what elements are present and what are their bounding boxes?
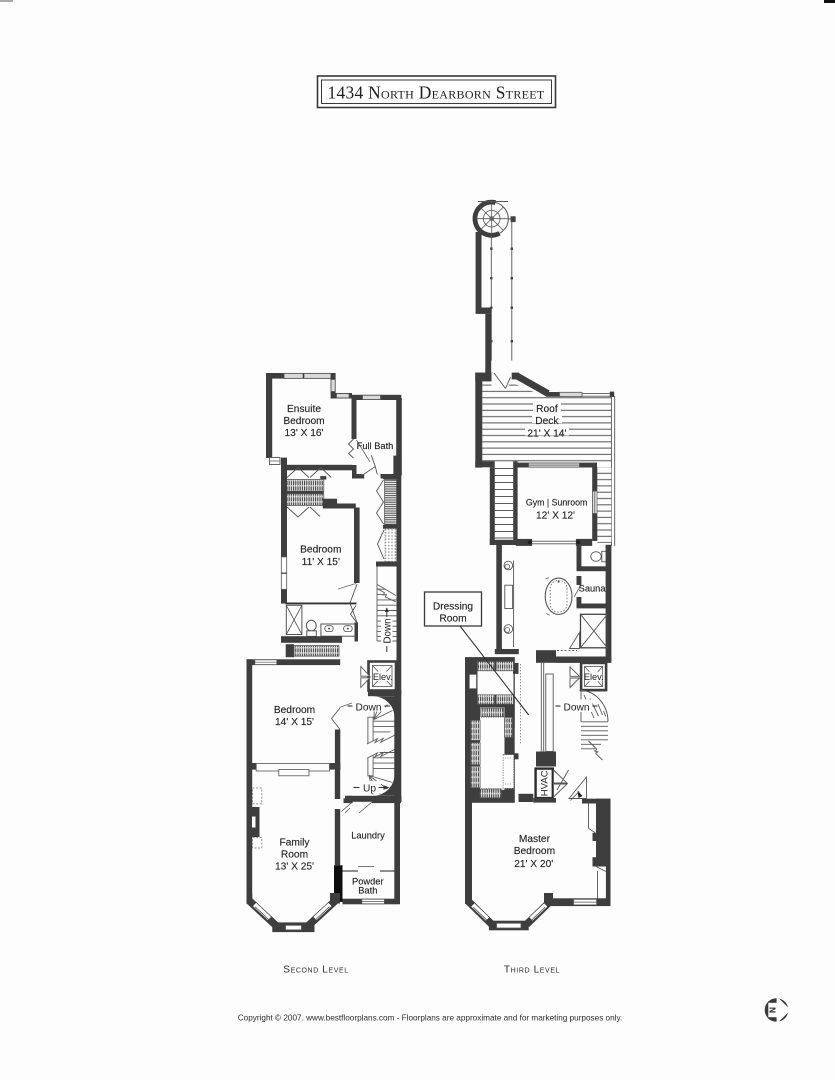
svg-text:Ensuite: Ensuite: [287, 404, 321, 415]
svg-text:Elev.: Elev.: [373, 672, 393, 682]
svg-text:13' X 25': 13' X 25': [275, 862, 314, 873]
svg-text:Elev.: Elev.: [584, 672, 604, 682]
svg-text:21' X 14': 21' X 14': [527, 429, 566, 440]
svg-text:Deck: Deck: [535, 416, 559, 427]
svg-text:Roof: Roof: [536, 404, 558, 415]
svg-text:Full Bath: Full Bath: [357, 441, 394, 451]
svg-text:Copyright © 2007. www.bestfloo: Copyright © 2007. www.bestfloorplans.com…: [238, 1014, 623, 1023]
svg-text:Down: Down: [355, 703, 381, 714]
svg-text:12' X 12': 12' X 12': [536, 511, 575, 522]
svg-text:Bath: Bath: [358, 886, 377, 896]
svg-text:Second Level: Second Level: [283, 965, 349, 976]
svg-text:Room: Room: [281, 850, 308, 861]
svg-text:14' X 15': 14' X 15': [275, 717, 314, 728]
svg-text:Room: Room: [439, 614, 466, 625]
svg-text:13' X 16': 13' X 16': [284, 428, 323, 439]
svg-text:21' X 20': 21' X 20': [514, 859, 553, 870]
svg-text:Up: Up: [363, 784, 376, 795]
svg-text:11' X 15': 11' X 15': [302, 557, 340, 568]
svg-text:Sauna: Sauna: [579, 583, 607, 593]
svg-text:N: N: [768, 1007, 778, 1013]
svg-text:HVAC: HVAC: [540, 770, 551, 796]
svg-text:Laundry: Laundry: [351, 831, 385, 841]
svg-text:Third Level: Third Level: [504, 965, 560, 976]
svg-text:Down: Down: [563, 703, 589, 714]
svg-text:1434 North Dearborn Street: 1434 North Dearborn Street: [327, 83, 544, 103]
svg-text:Dressing: Dressing: [433, 602, 474, 613]
svg-text:Master: Master: [519, 834, 551, 845]
svg-text:Bedroom: Bedroom: [514, 846, 555, 857]
svg-text:Bedroom: Bedroom: [274, 705, 315, 716]
svg-text:Bedroom: Bedroom: [283, 416, 324, 427]
svg-text:Bedroom: Bedroom: [300, 545, 341, 556]
svg-text:Family: Family: [280, 838, 311, 849]
svg-text:Down: Down: [382, 618, 393, 643]
svg-text:Gym | Sunroom: Gym | Sunroom: [526, 498, 587, 508]
